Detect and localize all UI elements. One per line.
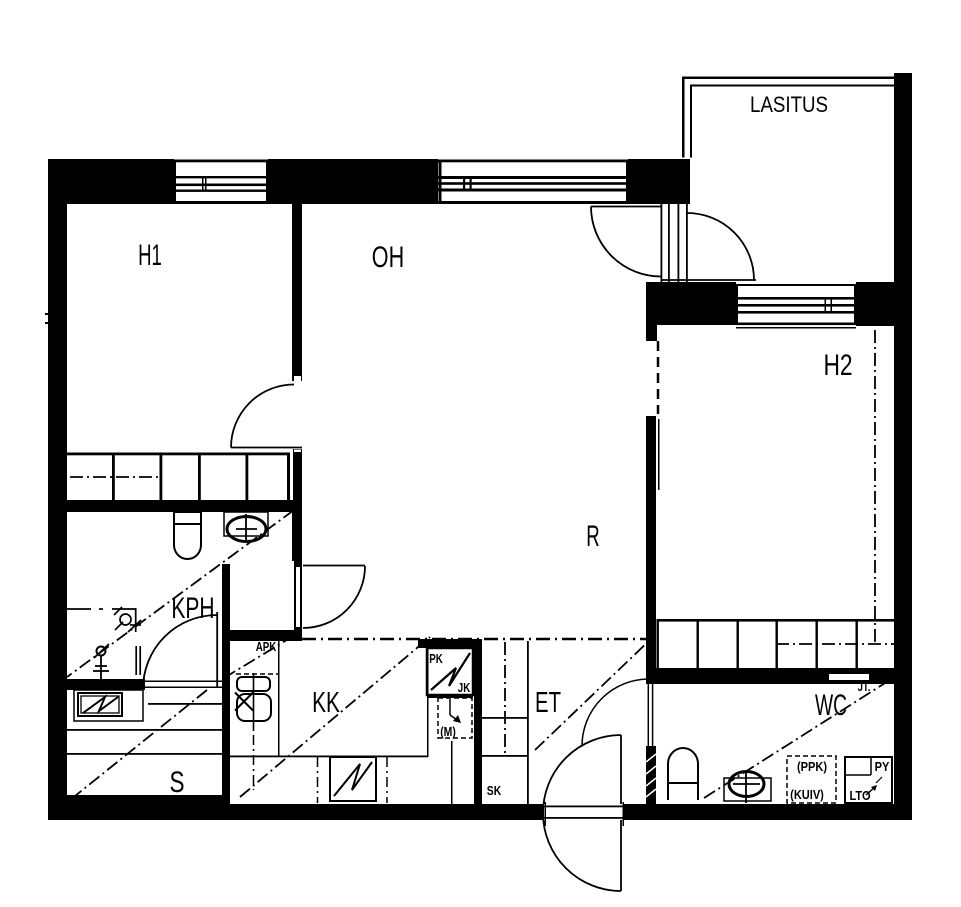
svg-text:H2: H2: [823, 348, 852, 382]
svg-text:(KUIV): (KUIV): [790, 787, 824, 802]
svg-text:LTO: LTO: [849, 788, 870, 803]
svg-text:KK: KK: [312, 687, 340, 719]
svg-text:PK: PK: [429, 653, 443, 667]
svg-text:PY: PY: [875, 759, 890, 774]
svg-text:OH: OH: [372, 239, 404, 273]
svg-text:JT.: JT.: [858, 681, 871, 694]
svg-text:ET: ET: [535, 687, 561, 719]
svg-text:LASITUS: LASITUS: [750, 94, 828, 118]
svg-text:R: R: [586, 520, 599, 554]
svg-text:JK: JK: [458, 682, 471, 696]
svg-text:H1: H1: [138, 239, 162, 273]
svg-text:(M): (M): [440, 725, 456, 739]
svg-text:S: S: [169, 765, 184, 799]
svg-text:SK: SK: [487, 784, 502, 798]
svg-text:KPH: KPH: [171, 593, 214, 625]
svg-text:WC: WC: [815, 689, 847, 722]
svg-text:(PPK): (PPK): [797, 759, 827, 774]
svg-text:APK: APK: [256, 641, 277, 655]
